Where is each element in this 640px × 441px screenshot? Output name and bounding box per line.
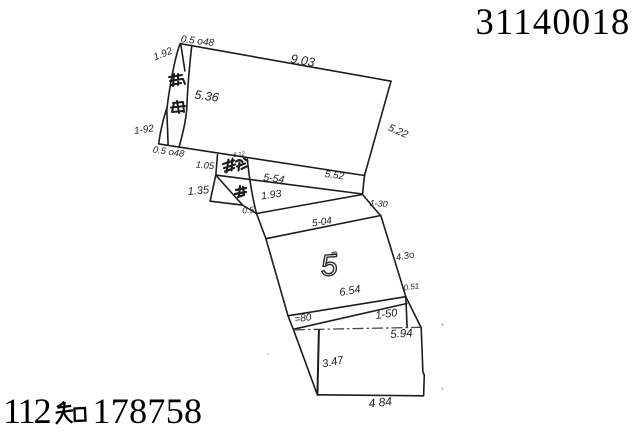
svg-text:0.5: 0.5 — [242, 204, 255, 215]
svg-text:5.94: 5.94 — [390, 327, 413, 341]
svg-text:1.05: 1.05 — [195, 160, 215, 173]
svg-text:m: m — [331, 250, 338, 258]
svg-text:112: 112 — [3, 391, 51, 431]
svg-text:4 84: 4 84 — [368, 394, 393, 410]
svg-text:1-30: 1-30 — [369, 198, 388, 209]
svg-text:5-54: 5-54 — [263, 172, 285, 186]
svg-text:178758: 178758 — [93, 391, 203, 431]
svg-text:1.35: 1.35 — [187, 184, 210, 198]
svg-text:31140018: 31140018 — [476, 1, 631, 42]
